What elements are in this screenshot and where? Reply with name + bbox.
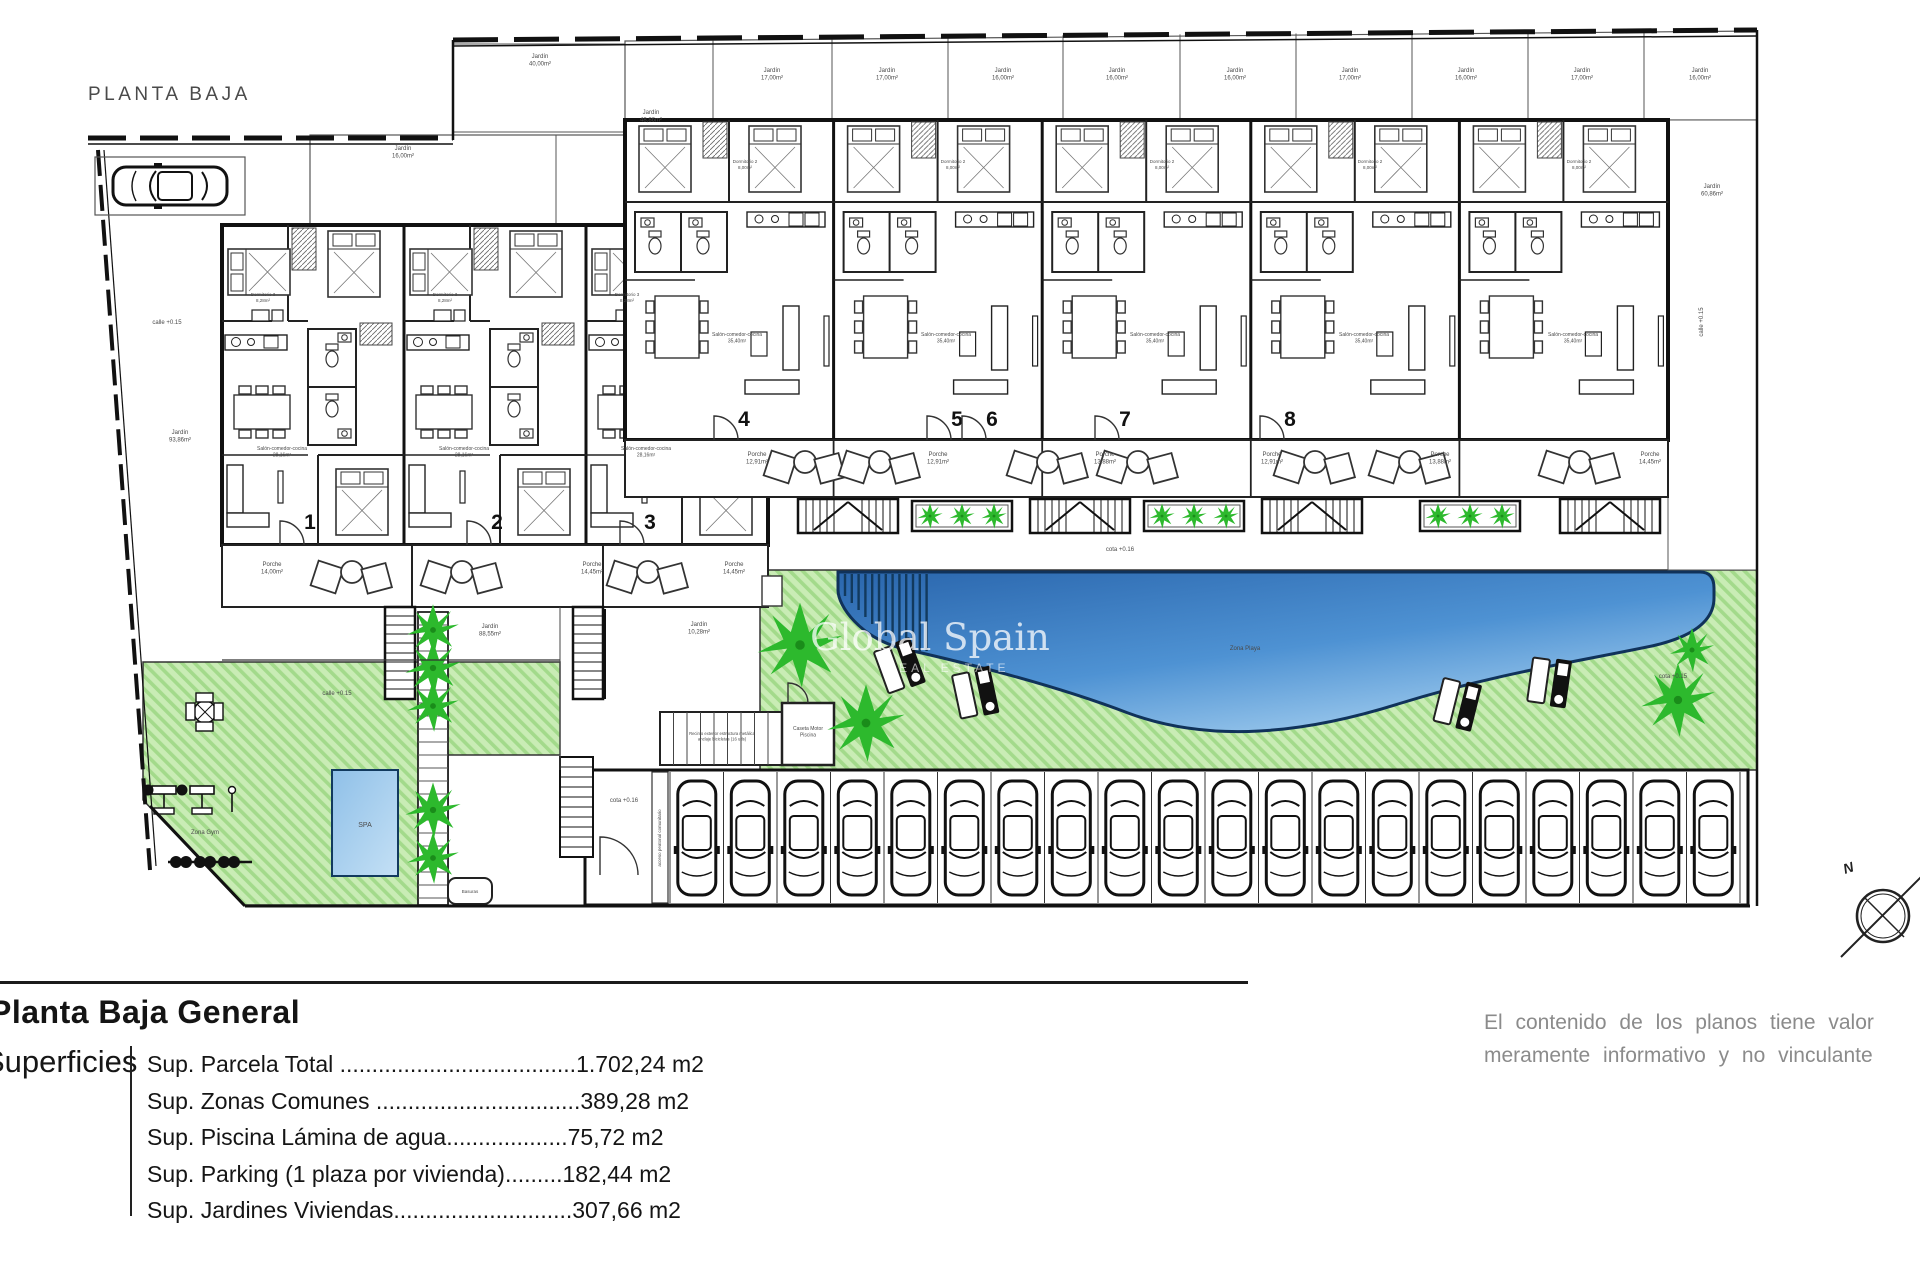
area-label: Jardín16,00m² bbox=[992, 68, 1014, 82]
unit-number: 7 bbox=[1119, 408, 1131, 431]
parked-car-icon bbox=[781, 781, 827, 895]
stairs bbox=[1262, 499, 1362, 533]
area-label: Porche14,00m² bbox=[261, 562, 283, 576]
area-label: Porche14,45m² bbox=[581, 562, 603, 576]
area-label: Porche12,91m² bbox=[746, 452, 768, 466]
plan-title: PLANTA BAJA bbox=[88, 84, 251, 105]
parked-car-icon bbox=[113, 163, 227, 209]
watermark-brand: Global Spain bbox=[810, 616, 1050, 659]
stairs bbox=[385, 607, 415, 699]
unit-number: 2 bbox=[491, 511, 503, 534]
area-label: Jardín16,00m² bbox=[1106, 68, 1128, 82]
area-label: Zona Playa bbox=[1230, 646, 1261, 652]
parked-car-icon bbox=[995, 781, 1041, 895]
area-label: Porche13,88m² bbox=[1429, 452, 1451, 466]
area-label: cota +0.15 bbox=[1659, 674, 1688, 680]
watermark-tagline: REAL ESTATE bbox=[886, 661, 1009, 675]
area-label: Jardín48,86m² bbox=[640, 110, 662, 124]
area-label: SPA bbox=[358, 822, 372, 829]
parked-car-icon bbox=[1583, 781, 1629, 895]
floor-plan-drawing: 12345678 Jardín40,00m²Jardín17,00m²Jardí… bbox=[0, 0, 1920, 985]
parked-car-icon bbox=[674, 781, 720, 895]
area-label: cota +0.16 bbox=[610, 798, 639, 804]
parked-car-icon bbox=[1369, 781, 1415, 895]
parked-car-icon bbox=[1262, 781, 1308, 895]
area-label: Jardín17,00m² bbox=[1571, 68, 1593, 82]
compass-north-label: N bbox=[1841, 858, 1856, 877]
surfaces-vertical-rule bbox=[130, 1046, 132, 1216]
area-label: Zona Gym bbox=[191, 830, 219, 836]
area-label: Jardín40,00m² bbox=[529, 54, 551, 68]
area-label: calle +0.15 bbox=[152, 320, 182, 326]
titleblock-divider-line bbox=[0, 981, 1248, 984]
disclaimer-line: meramente informativo y no vinculante bbox=[1484, 1039, 1874, 1072]
parked-car-icon bbox=[1102, 781, 1148, 895]
compass-rose: N bbox=[1841, 858, 1920, 957]
area-label: Porche14,45m² bbox=[1639, 452, 1661, 466]
area-label: Porche13,88m² bbox=[1094, 452, 1116, 466]
surfaces-list: Sup. Parcela Total .....................… bbox=[147, 1046, 704, 1229]
area-label: Jardín88,55m² bbox=[479, 624, 501, 638]
parked-car-icon bbox=[1209, 781, 1255, 895]
sheet-title: Planta Baja General bbox=[0, 994, 300, 1031]
parked-car-icon bbox=[1423, 781, 1469, 895]
area-label: Jardín17,00m² bbox=[761, 68, 783, 82]
area-label: Porche12,91m² bbox=[927, 452, 949, 466]
area-label: Jardín16,00m² bbox=[1689, 68, 1711, 82]
disclaimer: El contenido de los planos tiene valor m… bbox=[1484, 1006, 1874, 1072]
area-label: Porche14,45m² bbox=[723, 562, 745, 576]
surface-row: Sup. Parcela Total .....................… bbox=[147, 1046, 704, 1083]
parked-car-icon bbox=[888, 781, 934, 895]
disclaimer-line: El contenido de los planos tiene valor bbox=[1484, 1006, 1874, 1039]
parked-car-icon bbox=[727, 781, 773, 895]
area-label: calle +0.15 bbox=[322, 691, 352, 697]
area-label: Jardín10,28m² bbox=[688, 622, 710, 636]
surface-row: Sup. Piscina Lámina de agua.............… bbox=[147, 1119, 704, 1156]
parking-area bbox=[585, 770, 1748, 905]
parked-car-icon bbox=[1316, 781, 1362, 895]
stairs bbox=[798, 499, 898, 533]
parked-car-icon bbox=[941, 781, 987, 895]
unit-number: 4 bbox=[738, 408, 750, 431]
area-label: acceso peatonal comunitario bbox=[657, 809, 662, 867]
parked-car-icon bbox=[1637, 781, 1683, 895]
stairs bbox=[1560, 499, 1660, 533]
area-label: Jardín17,00m² bbox=[1339, 68, 1361, 82]
stairs bbox=[573, 607, 603, 699]
area-label: calle +0.15 bbox=[1699, 307, 1705, 337]
area-label: Jardín16,00m² bbox=[392, 146, 414, 160]
stairs bbox=[1030, 499, 1130, 533]
area-label: Porche12,91m² bbox=[1261, 452, 1283, 466]
area-label: Basuras bbox=[462, 889, 479, 894]
parked-car-icon bbox=[1155, 781, 1201, 895]
surface-row: Sup. Jardines Viviendas.................… bbox=[147, 1192, 704, 1229]
unit-number: 1 bbox=[304, 511, 316, 534]
floorplan-sheet: 12345678 Jardín40,00m²Jardín17,00m²Jardí… bbox=[0, 0, 1920, 1280]
area-label: Jardín17,00m² bbox=[876, 68, 898, 82]
area-label: Jardín16,00m² bbox=[1224, 68, 1246, 82]
parked-car-icon bbox=[1048, 781, 1094, 895]
surface-row: Sup. Zonas Comunes .....................… bbox=[147, 1083, 704, 1120]
unit-number: 8 bbox=[1284, 408, 1296, 431]
surface-row: Sup. Parking (1 plaza por vivienda).....… bbox=[147, 1156, 704, 1193]
unit-number: 6 bbox=[986, 408, 998, 431]
pool-wc bbox=[762, 576, 782, 606]
area-label: Jardín93,86m² bbox=[169, 430, 191, 444]
parked-car-icon bbox=[834, 781, 880, 895]
parked-car-icon bbox=[1530, 781, 1576, 895]
surfaces-heading: Superficies bbox=[0, 1044, 137, 1080]
area-label: Recinto exterior estructura metálicaancl… bbox=[689, 731, 756, 742]
parked-car-icon bbox=[1476, 781, 1522, 895]
area-label: Jardín60,86m² bbox=[1701, 184, 1723, 198]
area-label: cota +0.16 bbox=[1106, 547, 1135, 553]
area-label: Jardín16,00m² bbox=[1455, 68, 1477, 82]
parked-car-icon bbox=[1690, 781, 1736, 895]
unit-number: 3 bbox=[644, 511, 656, 534]
